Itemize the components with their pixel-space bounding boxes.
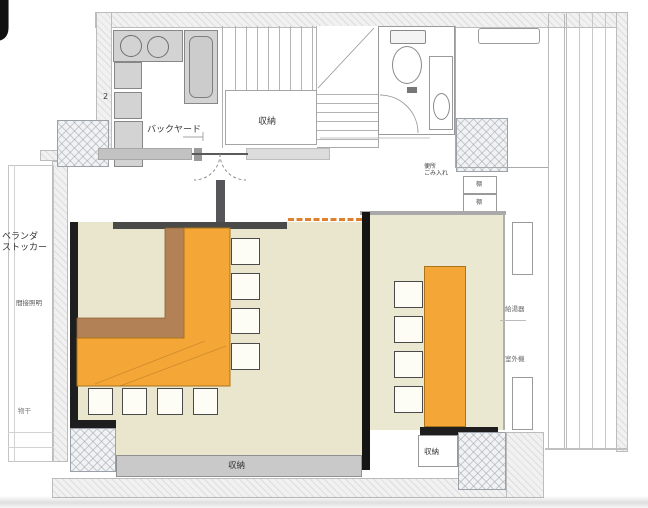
right-stool-1 <box>394 281 423 308</box>
water-heater-leader-line <box>500 320 526 321</box>
niche-hatch-box <box>458 432 506 490</box>
stool-bottom-1 <box>88 388 113 415</box>
door-swing-arc-right <box>220 154 246 180</box>
opening-dashed-line <box>288 218 362 221</box>
dining-top-wall-bar <box>113 222 287 229</box>
closet-top-label: 収納 <box>258 117 276 128</box>
toilet-flush-control <box>407 87 417 93</box>
toilet-bowl <box>392 46 422 84</box>
wall-band-door-left <box>98 148 192 160</box>
wall-outer-right <box>616 12 628 452</box>
dining-room-floor <box>77 222 363 456</box>
veranda-stocker-label-line1: ベランダ <box>2 232 47 243</box>
stool-right-2 <box>231 273 260 300</box>
kitchen-sink-basin <box>189 36 213 98</box>
right-room-top-wall <box>360 211 506 215</box>
toilet-hand-basin <box>433 93 450 120</box>
right-room-edge-line <box>503 214 505 430</box>
burner-icon-2 <box>147 36 169 58</box>
stair-number-label: 2 <box>103 93 108 101</box>
veranda-divider-b <box>8 447 54 448</box>
wall-left-strip <box>52 161 68 462</box>
hall-note-label: 便所 ごみ入れ <box>424 164 448 178</box>
balcony-bottom-line <box>545 448 628 450</box>
veranda-divider-a <box>8 432 54 433</box>
right-stool-2 <box>394 316 423 343</box>
stairs-lower-treads <box>317 86 379 148</box>
veranda-stocker-label: ベランダ ストッカー <box>2 232 47 254</box>
right-stool-4 <box>394 386 423 413</box>
pipe-space-hatch <box>456 118 508 172</box>
right-stool-3 <box>394 351 423 378</box>
floorplan-canvas: J バックヤード 2 収納 収納 収納 ベランダ ストッカー 間接照明 物干 便… <box>0 0 648 508</box>
balcony-slats <box>566 12 616 450</box>
shelf-bottom-label: 棚 <box>476 199 482 207</box>
stool-right-1 <box>231 238 260 265</box>
kitchen-unit-3 <box>114 121 143 149</box>
storage-right-label: 収納 <box>424 446 439 457</box>
bedroom-left-wall-line <box>455 26 456 167</box>
kitchen-unit-2 <box>114 92 142 119</box>
stool-right-4 <box>231 343 260 370</box>
laundry-hook-label: 物干 <box>18 408 31 416</box>
water-heater-box <box>512 222 533 275</box>
veranda-inner-line <box>14 165 15 462</box>
stool-bottom-2 <box>122 388 147 415</box>
stool-right-3 <box>231 308 260 334</box>
shelf-top-label: 棚 <box>476 181 482 189</box>
indirect-lighting-label: 間接照明 <box>16 300 42 308</box>
stairs-upper-run <box>225 26 317 90</box>
partition-wall-bar <box>362 212 370 470</box>
kitchen-unit-1 <box>114 62 142 89</box>
bedroom-bottom-line <box>455 167 548 168</box>
wall-band-door-right <box>246 148 330 160</box>
dining-corner-wall-bar <box>70 420 116 428</box>
stool-bottom-3 <box>157 388 183 415</box>
wall-bottom-right-return <box>506 432 544 498</box>
storage-bottom-label: 収納 <box>228 461 245 472</box>
dining-left-wall-bar <box>70 222 78 422</box>
corner-hatch-box <box>70 428 116 472</box>
stool-bottom-4 <box>193 388 218 415</box>
right-table <box>424 266 466 427</box>
corner-letter: J <box>0 0 13 44</box>
door-stub-wall <box>216 180 225 223</box>
veranda-stocker-label-line2: ストッカー <box>2 243 47 254</box>
right-wall-line-b <box>564 14 565 448</box>
water-heater-label: 給湯器 <box>505 306 525 314</box>
stairs-left-divider <box>222 26 223 148</box>
right-wall-line-a <box>548 14 549 448</box>
outdoor-unit-label: 室外機 <box>505 356 525 364</box>
ac-unit <box>478 28 540 44</box>
backyard-label: バックヤード <box>147 125 201 136</box>
outdoor-unit-box <box>512 377 533 430</box>
burner-icon-1 <box>120 35 142 57</box>
hall-note-line2: ごみ入れ <box>424 171 448 178</box>
scan-smudge <box>0 496 648 508</box>
door-header-line <box>192 153 248 155</box>
toilet-tank <box>390 30 426 44</box>
